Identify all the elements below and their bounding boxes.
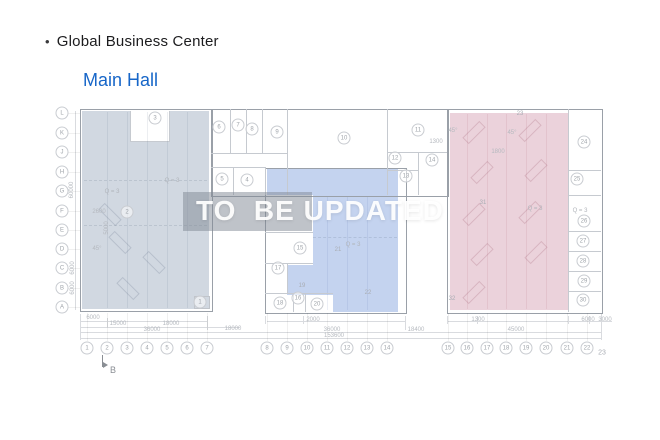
room-number: 16 xyxy=(292,292,305,305)
wall xyxy=(568,251,601,252)
room-number: 8 xyxy=(246,123,259,136)
dimension-text: 15000 xyxy=(110,321,127,327)
area-label: Q = 3 xyxy=(105,189,120,195)
wall xyxy=(568,195,601,196)
wall xyxy=(287,263,288,293)
dimension-tick xyxy=(405,316,406,330)
grid-col-stub xyxy=(546,313,547,341)
room-number: 21 xyxy=(335,247,342,253)
dimension-text: 3000 xyxy=(598,317,611,323)
dimension-tick xyxy=(80,314,81,340)
grid-row-label: G xyxy=(56,185,69,198)
room-number: 19 xyxy=(299,283,306,289)
wall xyxy=(568,271,601,272)
room-number: 4 xyxy=(241,174,254,187)
wall xyxy=(305,293,306,312)
room-number: 5 xyxy=(216,173,229,186)
dimension-tick xyxy=(303,316,304,324)
dimension-text: 6000 xyxy=(70,281,76,294)
dimension-text: 1800 xyxy=(491,149,504,155)
area-label: Q = 3 xyxy=(346,242,361,248)
grid-row-stub xyxy=(68,133,80,134)
grid-col-label: 2 xyxy=(101,342,114,355)
grid-col-stub xyxy=(567,313,568,341)
grid-col-label: 15 xyxy=(442,342,455,355)
dimension-text: 5000 xyxy=(104,221,110,234)
dimension-text: 45000 xyxy=(508,327,525,333)
wall xyxy=(568,170,601,171)
wall xyxy=(287,109,288,195)
grid-row-label: A xyxy=(56,301,69,314)
grid-col-stub xyxy=(467,313,468,341)
dimension-text: 6000 xyxy=(70,261,76,274)
room-number: 13 xyxy=(400,170,413,183)
wall xyxy=(211,153,287,154)
grid-col-label: 9 xyxy=(281,342,294,355)
grid-row-stub xyxy=(68,172,80,173)
grid-col-label: 21 xyxy=(561,342,574,355)
section-marker-label: B xyxy=(110,365,116,375)
grid-col-stub xyxy=(448,313,449,341)
room-number: 17 xyxy=(272,262,285,275)
area-label: Q = 3 xyxy=(165,178,180,184)
grid-col-label: 8 xyxy=(261,342,274,355)
room-number: 12 xyxy=(389,152,402,165)
grid-row-label: E xyxy=(56,224,69,237)
grid-col-label: 17 xyxy=(481,342,494,355)
room-number: 15 xyxy=(294,242,307,255)
area-label: Q = 3 xyxy=(528,206,543,212)
room-number: 31 xyxy=(480,200,487,206)
grid-col-label: 18 xyxy=(500,342,513,355)
grid-col-label: 16 xyxy=(461,342,474,355)
room-number: 29 xyxy=(578,275,591,288)
dimension-text: 18400 xyxy=(408,327,425,333)
grid-col-stub xyxy=(167,313,168,341)
grid-col-label: 12 xyxy=(341,342,354,355)
grid-col-stub xyxy=(487,313,488,341)
grid-col-label: 3 xyxy=(121,342,134,355)
grid-row-label: F xyxy=(56,205,69,218)
room-number: 10 xyxy=(338,132,351,145)
dimension-text: 1300 xyxy=(471,317,484,323)
wall xyxy=(568,231,601,232)
grid-row-stub xyxy=(68,152,80,153)
grid-col-label: 7 xyxy=(201,342,214,355)
room-number: 6 xyxy=(213,121,226,134)
room-number: 32 xyxy=(449,296,456,302)
grid-row-label: D xyxy=(56,243,69,256)
section-arrow-icon xyxy=(103,362,108,368)
grid-col-label: 11 xyxy=(321,342,334,355)
area-label: Q = 3 xyxy=(573,208,588,214)
wall xyxy=(568,109,569,312)
wall xyxy=(230,109,231,153)
room-number: 24 xyxy=(578,136,591,149)
grid-col-stub xyxy=(287,313,288,341)
grid-col-stub xyxy=(107,313,108,341)
dimension-text: 18000 xyxy=(225,326,242,332)
room-number: 11 xyxy=(412,124,425,137)
grid-col-label: 1 xyxy=(81,342,94,355)
dimension-text: 2600 xyxy=(92,209,105,215)
room-number: 27 xyxy=(577,235,590,248)
dimension-text: 45° xyxy=(92,246,101,252)
room-number: 30 xyxy=(577,294,590,307)
room-number: 26 xyxy=(578,215,591,228)
dimension-text: 6000 xyxy=(581,317,594,323)
room-number: 9 xyxy=(271,126,284,139)
dimension-text: 18000 xyxy=(163,321,180,327)
dimension-text: 36000 xyxy=(144,327,161,333)
grid-col-label: 13 xyxy=(361,342,374,355)
room-number: 25 xyxy=(571,173,584,186)
grid-col-label: 23 xyxy=(598,350,606,357)
grid-row-label: H xyxy=(56,166,69,179)
grid-row-stub xyxy=(68,230,80,231)
grid-row-label: L xyxy=(56,107,69,120)
room-number: 28 xyxy=(577,255,590,268)
grid-col-label: 10 xyxy=(301,342,314,355)
watermark-text: TO BE UPDATED xyxy=(196,195,444,227)
wall xyxy=(262,109,263,153)
room-number: 23 xyxy=(517,111,524,117)
room-number: 22 xyxy=(365,290,372,296)
grid-row-stub xyxy=(68,113,80,114)
grid-col-stub xyxy=(127,313,128,341)
dimension-text: 60000 xyxy=(69,182,75,199)
dimension-text: 2000 xyxy=(306,317,319,323)
grid-row-label: B xyxy=(56,282,69,295)
room-number: 20 xyxy=(311,298,324,311)
grid-col-stub xyxy=(367,313,368,341)
grid-col-label: 22 xyxy=(581,342,594,355)
room-number: 1 xyxy=(194,296,207,309)
grid-row-stub xyxy=(68,211,80,212)
dimension-text: 1300 xyxy=(429,139,442,145)
grid-col-label: 5 xyxy=(161,342,174,355)
grid-col-stub xyxy=(267,313,268,341)
grid-row-stub xyxy=(68,249,80,250)
slide-page: •Global Business Center Main Hall LKJHGF… xyxy=(0,0,660,440)
wall xyxy=(233,167,234,195)
grid-col-label: 4 xyxy=(141,342,154,355)
grid-col-stub xyxy=(187,313,188,341)
grid-col-stub xyxy=(207,313,208,341)
dimension-tick xyxy=(568,316,569,324)
room-number: 3 xyxy=(149,112,162,125)
room-number: 7 xyxy=(232,119,245,132)
dimension-text: 153600 xyxy=(324,333,344,339)
grid-col-label: 14 xyxy=(381,342,394,355)
room-number: 14 xyxy=(426,154,439,167)
dimension-text: 45° xyxy=(448,128,457,134)
grid-col-stub xyxy=(526,313,527,341)
wall xyxy=(418,152,419,195)
grid-col-stub xyxy=(347,313,348,341)
wall xyxy=(265,167,266,195)
dimension-text: 6000 xyxy=(86,315,99,321)
grid-col-stub xyxy=(387,313,388,341)
dimension-text: 45° xyxy=(507,130,516,136)
grid-col-label: 19 xyxy=(520,342,533,355)
room-number: 18 xyxy=(274,297,287,310)
grid-col-label: 6 xyxy=(181,342,194,355)
grid-row-label: J xyxy=(56,146,69,159)
grid-row-label: C xyxy=(56,262,69,275)
grid-row-label: K xyxy=(56,127,69,140)
wall xyxy=(211,167,265,168)
grid-row-stub xyxy=(68,307,80,308)
wall xyxy=(568,291,601,292)
wall xyxy=(265,232,313,233)
room-number: 2 xyxy=(121,206,134,219)
dimension-tick xyxy=(265,316,266,324)
grid-col-label: 20 xyxy=(540,342,553,355)
